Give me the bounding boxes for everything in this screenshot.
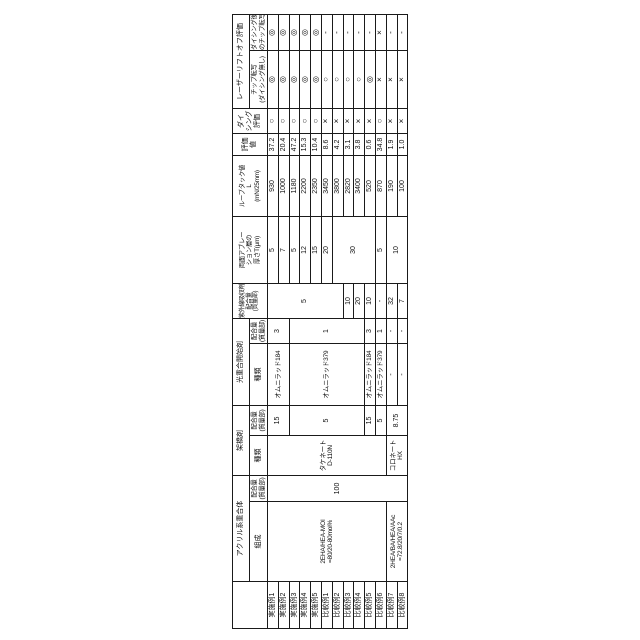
initiator-kind-cell: -	[397, 344, 408, 406]
eval-cell: 1.0	[397, 134, 408, 156]
formulation-evaluation-table: アクリル系重合体 架橋剤 光重合開始剤 紫外線吸収剤 配合量 (質量部) 両面ア…	[232, 14, 408, 629]
crosslinker-amount-cell: 5	[289, 406, 365, 436]
eval-cell: 3.8	[354, 134, 365, 156]
row-label: 比較例3	[343, 582, 354, 629]
looptack-cell: 2350	[311, 156, 322, 217]
ablation-cell: 7	[278, 217, 289, 284]
row-label: 実施例1	[268, 582, 279, 629]
initiator-kind-cell: -	[386, 344, 397, 406]
uv-amount-cell: 5	[268, 284, 344, 319]
crosslinker-line1: コロネート	[390, 436, 397, 475]
dicing-line3: 評価	[254, 109, 262, 133]
composition-line1: 2HEA/BA/HEA/AAc	[390, 502, 397, 581]
initiator-amount-cell: 3	[268, 319, 290, 344]
ablation-cell: 5	[289, 217, 300, 284]
uv-group-label: 紫外線吸収剤	[240, 284, 247, 318]
dicing-cell: ×	[343, 109, 354, 134]
chip1-cell: ◎	[268, 51, 279, 109]
row-label: 比較例5	[365, 582, 376, 629]
row-label: 比較例1	[321, 582, 332, 629]
row-label: 比較例4	[354, 582, 365, 629]
crosslinker-kind-header: 種類	[250, 436, 268, 476]
polymer-amount-cell: 100	[268, 476, 408, 502]
composition-line1: 2EHA/HEA-MOI	[320, 502, 327, 581]
row-label: 実施例3	[289, 582, 300, 629]
crosslinker-amount-cell: 5	[375, 406, 386, 436]
dicing-cell: ×	[365, 109, 376, 134]
dicing-cell: ○	[268, 109, 279, 134]
looptack-cell: 2820	[343, 156, 354, 217]
looptack-cell: 3800	[332, 156, 343, 217]
table-row: 比較例7 2HEA/BA/HEA/AAc =72.8/20/7/0.2 コロネー…	[386, 15, 397, 629]
ablation-cell: 15	[311, 217, 322, 284]
row-label: 実施例4	[300, 582, 311, 629]
initiator-amount-cell: 1	[289, 319, 365, 344]
looptack-cell: 2200	[300, 156, 311, 217]
chip1-line1: チップ転写	[251, 51, 258, 108]
crosslinker-amount-cell: 15	[365, 406, 376, 436]
crosslinker-amount-cell: 15	[268, 406, 290, 436]
dicing-cell: ×	[354, 109, 365, 134]
crosslinker-kind-cell: タケネート D-110N	[268, 436, 387, 476]
uv-amount-cell: -	[375, 284, 386, 319]
chip1-cell: ○	[354, 51, 365, 109]
uv-amount-cell: 20	[354, 284, 365, 319]
eval-line1: 評価	[242, 134, 250, 155]
initiator-amount-cell: -	[386, 319, 397, 344]
ablation-cell: 12	[300, 217, 311, 284]
dicing-cell: ×	[332, 109, 343, 134]
chip2-cell: ◎	[278, 15, 289, 51]
looptack-cell: 100	[397, 156, 408, 217]
crosslinker-amount-cell: 8.75	[386, 406, 408, 436]
crosslinker-group-header: 架橋剤	[233, 406, 250, 476]
composition-line2: =80/20-80mol%	[327, 502, 334, 581]
chip2-cell: ◎	[289, 15, 300, 51]
eval-cell: 1.9	[386, 134, 397, 156]
initiator-amount-cell: -	[397, 319, 408, 344]
looptack-cell: 3400	[354, 156, 365, 217]
eval-value-header: 評価 値	[233, 134, 268, 156]
amount-label: 配合量	[251, 319, 258, 343]
ablation-cell: 30	[332, 217, 375, 284]
eval-cell: 20.4	[278, 134, 289, 156]
dicing-cell: ○	[289, 109, 300, 134]
ablation-cell: 5	[268, 217, 279, 284]
dicing-eval-header: ダイ シング 評価	[233, 109, 268, 134]
chip2-line2: のチップ転写	[259, 15, 266, 50]
row-label: 比較例6	[375, 582, 386, 629]
amount-unit: (質量部)	[259, 476, 266, 501]
dicing-cell: ○	[300, 109, 311, 134]
eval-cell: 15.3	[300, 134, 311, 156]
table-row: 実施例1 2EHA/HEA-MOI =80/20-80mol% 100 タケネー…	[268, 15, 279, 629]
chip2-cell: -	[365, 15, 376, 51]
eval-cell: 10.4	[311, 134, 322, 156]
chip-transfer-after-dicing-header: ダイシング後 のチップ転写	[250, 15, 268, 51]
chip2-cell: -	[397, 15, 408, 51]
chip2-cell: ◎	[311, 15, 322, 51]
initiator-kind-cell: オムニラッド184	[268, 344, 290, 406]
looptack-cell: 520	[365, 156, 376, 217]
crosslinker-line2: HX	[397, 436, 404, 475]
eval-cell: 0.6	[365, 134, 376, 156]
eval-cell: 34.8	[375, 134, 386, 156]
amount-unit: (質量部)	[259, 406, 266, 435]
chip1-cell: ○	[343, 51, 354, 109]
looptack-cell: 3450	[321, 156, 332, 217]
chip2-cell: ◎	[268, 15, 279, 51]
ablation-cell: 20	[321, 217, 332, 284]
page: アクリル系重合体 架橋剤 光重合開始剤 紫外線吸収剤 配合量 (質量部) 両面ア…	[0, 0, 640, 640]
chip2-cell: -	[343, 15, 354, 51]
composition-header: 組成	[250, 502, 268, 582]
crosslinker-line2: D-110N	[327, 436, 334, 475]
amount-label: 配合量	[251, 406, 258, 435]
initiator-group-header: 光重合開始剤	[233, 319, 250, 406]
amount-label: 配合量	[251, 476, 258, 501]
ablation-cell: 10	[386, 217, 408, 284]
dicing-cell: ×	[397, 109, 408, 134]
uv-absorber-header: 紫外線吸収剤 配合量 (質量部)	[233, 284, 268, 319]
initiator-kind-cell: オムニラッド379	[375, 344, 386, 406]
chip2-cell: ×	[375, 15, 386, 51]
rotated-patent-table: アクリル系重合体 架橋剤 光重合開始剤 紫外線吸収剤 配合量 (質量部) 両面ア…	[232, 15, 408, 629]
eval-cell: 3.1	[343, 134, 354, 156]
initiator-amount-cell: 3	[365, 319, 376, 344]
composition-cell: 2HEA/BA/HEA/AAc =72.8/20/7/0.2	[386, 502, 408, 582]
chip2-line1: ダイシング後	[251, 15, 258, 50]
row-label: 比較例2	[332, 582, 343, 629]
polymer-amount-header: 配合量 (質量部)	[250, 476, 268, 502]
looptack-cell: 930	[268, 156, 279, 217]
chip2-cell: -	[354, 15, 365, 51]
ablation-layer-header: 両面アブレー ション層の 厚さT(μm)	[233, 217, 268, 284]
laser-liftoff-group-header: レーザーリフトオフ評価	[233, 15, 250, 109]
ablation-line3: 厚さT(μm)	[254, 217, 261, 283]
chip-transfer-no-dicing-header: チップ転写 (ダイシング無し)	[250, 51, 268, 109]
crosslinker-amount-header: 配合量 (質量部)	[250, 406, 268, 436]
initiator-amount-cell: 1	[375, 319, 386, 344]
chip1-cell: ○	[332, 51, 343, 109]
row-label: 実施例2	[278, 582, 289, 629]
looptack-line3: (mN/25mm)	[254, 156, 261, 216]
dicing-line2: シング	[246, 109, 254, 133]
ablation-line2: ション層の	[246, 217, 253, 283]
row-label: 実施例5	[311, 582, 322, 629]
chip1-cell: ◎	[365, 51, 376, 109]
chip1-cell: ×	[375, 51, 386, 109]
chip2-cell: -	[321, 15, 332, 51]
uv-amount-unit: (質量部)	[253, 284, 260, 318]
dicing-cell: ○	[311, 109, 322, 134]
chip1-cell: ◎	[278, 51, 289, 109]
eval-cell: 47.2	[289, 134, 300, 156]
uv-amount-cell: 32	[386, 284, 397, 319]
dicing-cell: ×	[386, 109, 397, 134]
chip1-cell: ○	[321, 51, 332, 109]
uv-amount-cell: 10	[365, 284, 376, 319]
initiator-kind-header: 種類	[250, 344, 268, 406]
composition-line2: =72.8/20/7/0.2	[397, 502, 404, 581]
looptack-cell: 1180	[289, 156, 300, 217]
looptack-line1: ループタック値	[239, 156, 246, 216]
ablation-cell: 5	[375, 217, 386, 284]
polymer-group-header: アクリル系重合体	[233, 476, 250, 582]
chip2-cell: ◎	[300, 15, 311, 51]
initiator-kind-cell: オムニラッド184	[365, 344, 376, 406]
looptack-line2: L	[246, 156, 253, 216]
eval-line2: 値	[250, 134, 258, 155]
chip1-cell: ×	[386, 51, 397, 109]
dicing-line1: ダイ	[238, 109, 246, 133]
dicing-cell: ○	[375, 109, 386, 134]
dicing-cell: ○	[278, 109, 289, 134]
crosslinker-kind-cell: コロネート HX	[386, 436, 408, 476]
amount-unit: (質量部)	[259, 319, 266, 343]
eval-cell: 37.2	[268, 134, 279, 156]
dicing-cell: ×	[321, 109, 332, 134]
looptack-header: ループタック値 L (mN/25mm)	[233, 156, 268, 217]
chip2-cell: -	[332, 15, 343, 51]
eval-cell: 8.6	[321, 134, 332, 156]
chip1-cell: ◎	[311, 51, 322, 109]
chip2-cell: -	[386, 15, 397, 51]
looptack-cell: 870	[375, 156, 386, 217]
uv-amount-cell: 7	[397, 284, 408, 319]
chip1-cell: ◎	[289, 51, 300, 109]
row-label: 比較例7	[386, 582, 397, 629]
chip1-line2: (ダイシング無し)	[259, 51, 266, 108]
initiator-kind-cell: オムニラッド379	[289, 344, 365, 406]
composition-cell: 2EHA/HEA-MOI =80/20-80mol%	[268, 502, 387, 582]
corner-cell	[233, 582, 268, 629]
chip1-cell: ◎	[300, 51, 311, 109]
eval-cell: 4.2	[332, 134, 343, 156]
looptack-cell: 190	[386, 156, 397, 217]
crosslinker-line1: タケネート	[320, 436, 327, 475]
uv-amount-cell: 10	[343, 284, 354, 319]
row-label: 比較例8	[397, 582, 408, 629]
initiator-amount-header: 配合量 (質量部)	[250, 319, 268, 344]
looptack-cell: 1000	[278, 156, 289, 217]
chip1-cell: ×	[397, 51, 408, 109]
